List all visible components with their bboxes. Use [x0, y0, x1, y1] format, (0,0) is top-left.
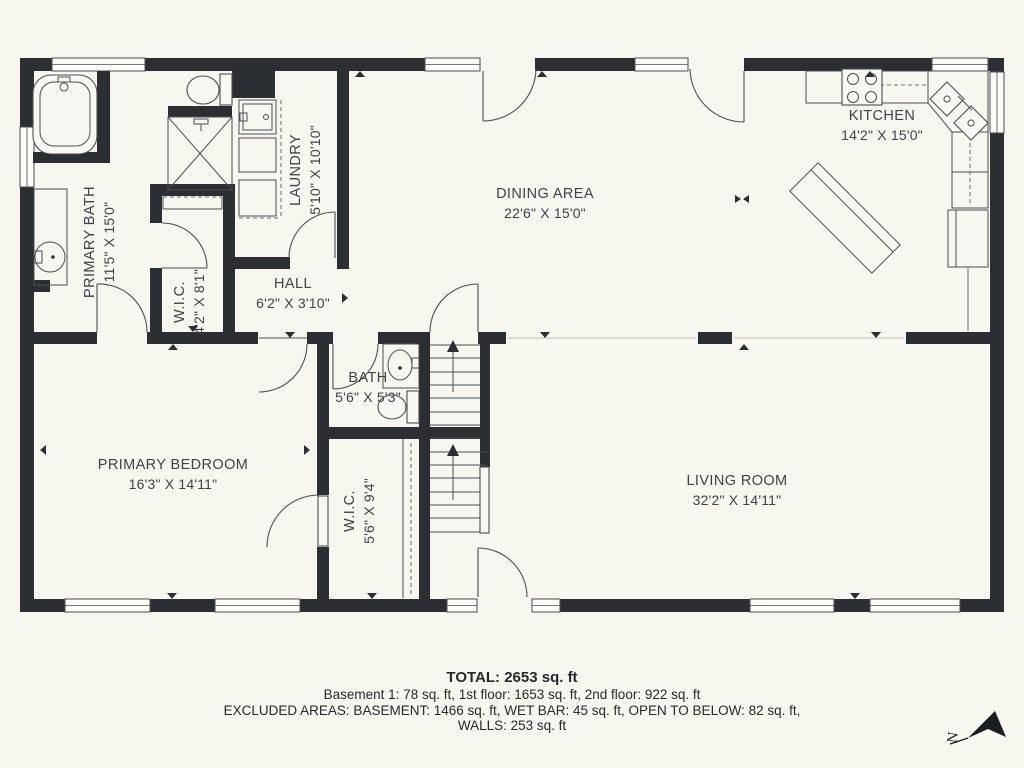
door: [259, 338, 307, 392]
window: [52, 58, 145, 71]
window: [20, 127, 34, 187]
window: [870, 599, 960, 612]
room-label-kitchen: KITCHEN 14'2" X 15'0": [841, 107, 923, 145]
door: [162, 223, 207, 268]
excluded-areas-text: EXCLUDED AREAS: BASEMENT: 1466 sq. ft, W…: [0, 703, 1024, 719]
kitchen-island: [790, 163, 900, 273]
kitchen-sink: [930, 82, 988, 140]
room-label-primary-bedroom: PRIMARY BEDROOM 16'3" X 14'11": [98, 456, 249, 494]
stove: [842, 69, 882, 105]
room-label-wic-upper: W.I.C. 4'2" X 8'1": [171, 269, 209, 335]
window: [532, 599, 560, 612]
window: [215, 599, 300, 612]
window: [65, 599, 150, 612]
vanity-sink-primary-bath: [34, 189, 67, 285]
door: [690, 69, 744, 122]
room-label-hall: HALL 6'2" X 3'10": [256, 275, 330, 313]
window: [750, 599, 834, 612]
room-label-dining-area: DINING AREA 22'6" X 15'0": [496, 185, 594, 223]
room-label-bath: BATH 5'6" X 5'3": [335, 369, 401, 407]
door: [289, 212, 335, 258]
walls-area-text: WALLS: 253 sq. ft: [0, 718, 1024, 734]
floor-areas-text: Basement 1: 78 sq. ft, 1st floor: 1653 s…: [0, 687, 1024, 703]
door: [483, 69, 536, 121]
stair-rail: [480, 467, 489, 533]
floor-plan-page: N PRIMARY BATH 11'5" X 15'0" W.I.C. 4'2"…: [0, 0, 1024, 768]
refrigerator: [948, 210, 988, 267]
stairs-up-arrow: [447, 340, 459, 500]
window: [990, 72, 1004, 133]
window: [425, 58, 480, 71]
door: [478, 548, 527, 597]
closet-rod-wic-upper: [163, 197, 222, 209]
toilet-primary-bath: [187, 74, 232, 105]
washer-dryer-laundry: [239, 100, 281, 218]
room-label-primary-bath: PRIMARY BATH 11'5" X 15'0": [81, 186, 119, 298]
bathtub: [33, 75, 97, 154]
door: [430, 284, 478, 332]
closet-rod-wic-lower: [403, 439, 411, 598]
window: [932, 58, 988, 71]
door: [267, 495, 328, 547]
room-label-laundry: LAUNDRY 5'10" X 10'10": [287, 125, 325, 215]
total-area-text: TOTAL: 2653 sq. ft: [0, 669, 1024, 687]
area-summary: TOTAL: 2653 sq. ft Basement 1: 78 sq. ft…: [0, 669, 1024, 734]
window: [635, 58, 688, 71]
room-label-wic-lower: W.I.C. 5'6" X 9'4": [341, 478, 379, 544]
shower: [168, 117, 232, 190]
window: [447, 599, 477, 612]
room-label-living-room: LIVING ROOM 32'2" X 14'11": [686, 472, 787, 510]
